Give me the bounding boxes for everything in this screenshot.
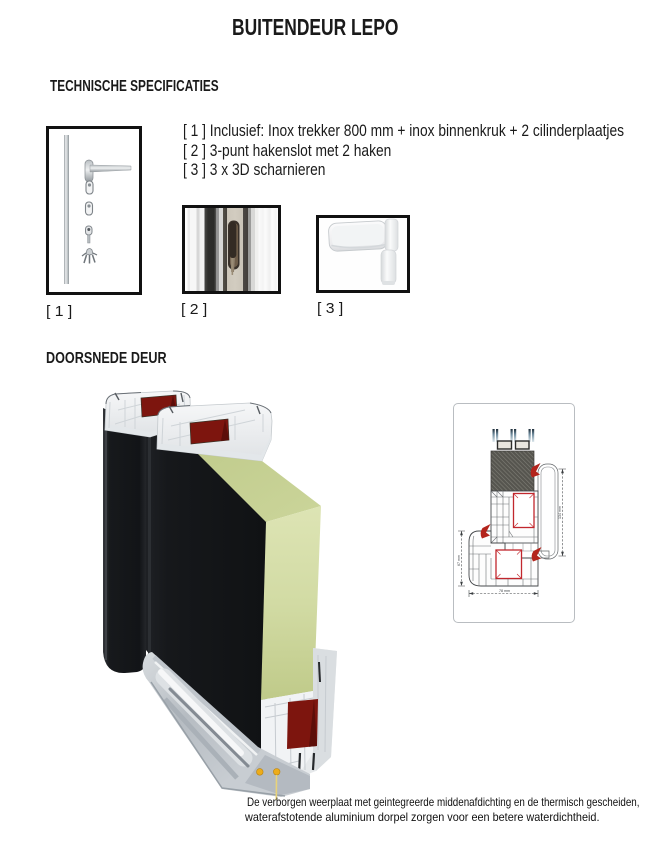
svg-text:67 mm: 67 mm bbox=[457, 555, 461, 566]
svg-text:134 mm: 134 mm bbox=[558, 506, 562, 519]
svg-text:78 mm: 78 mm bbox=[499, 589, 510, 593]
